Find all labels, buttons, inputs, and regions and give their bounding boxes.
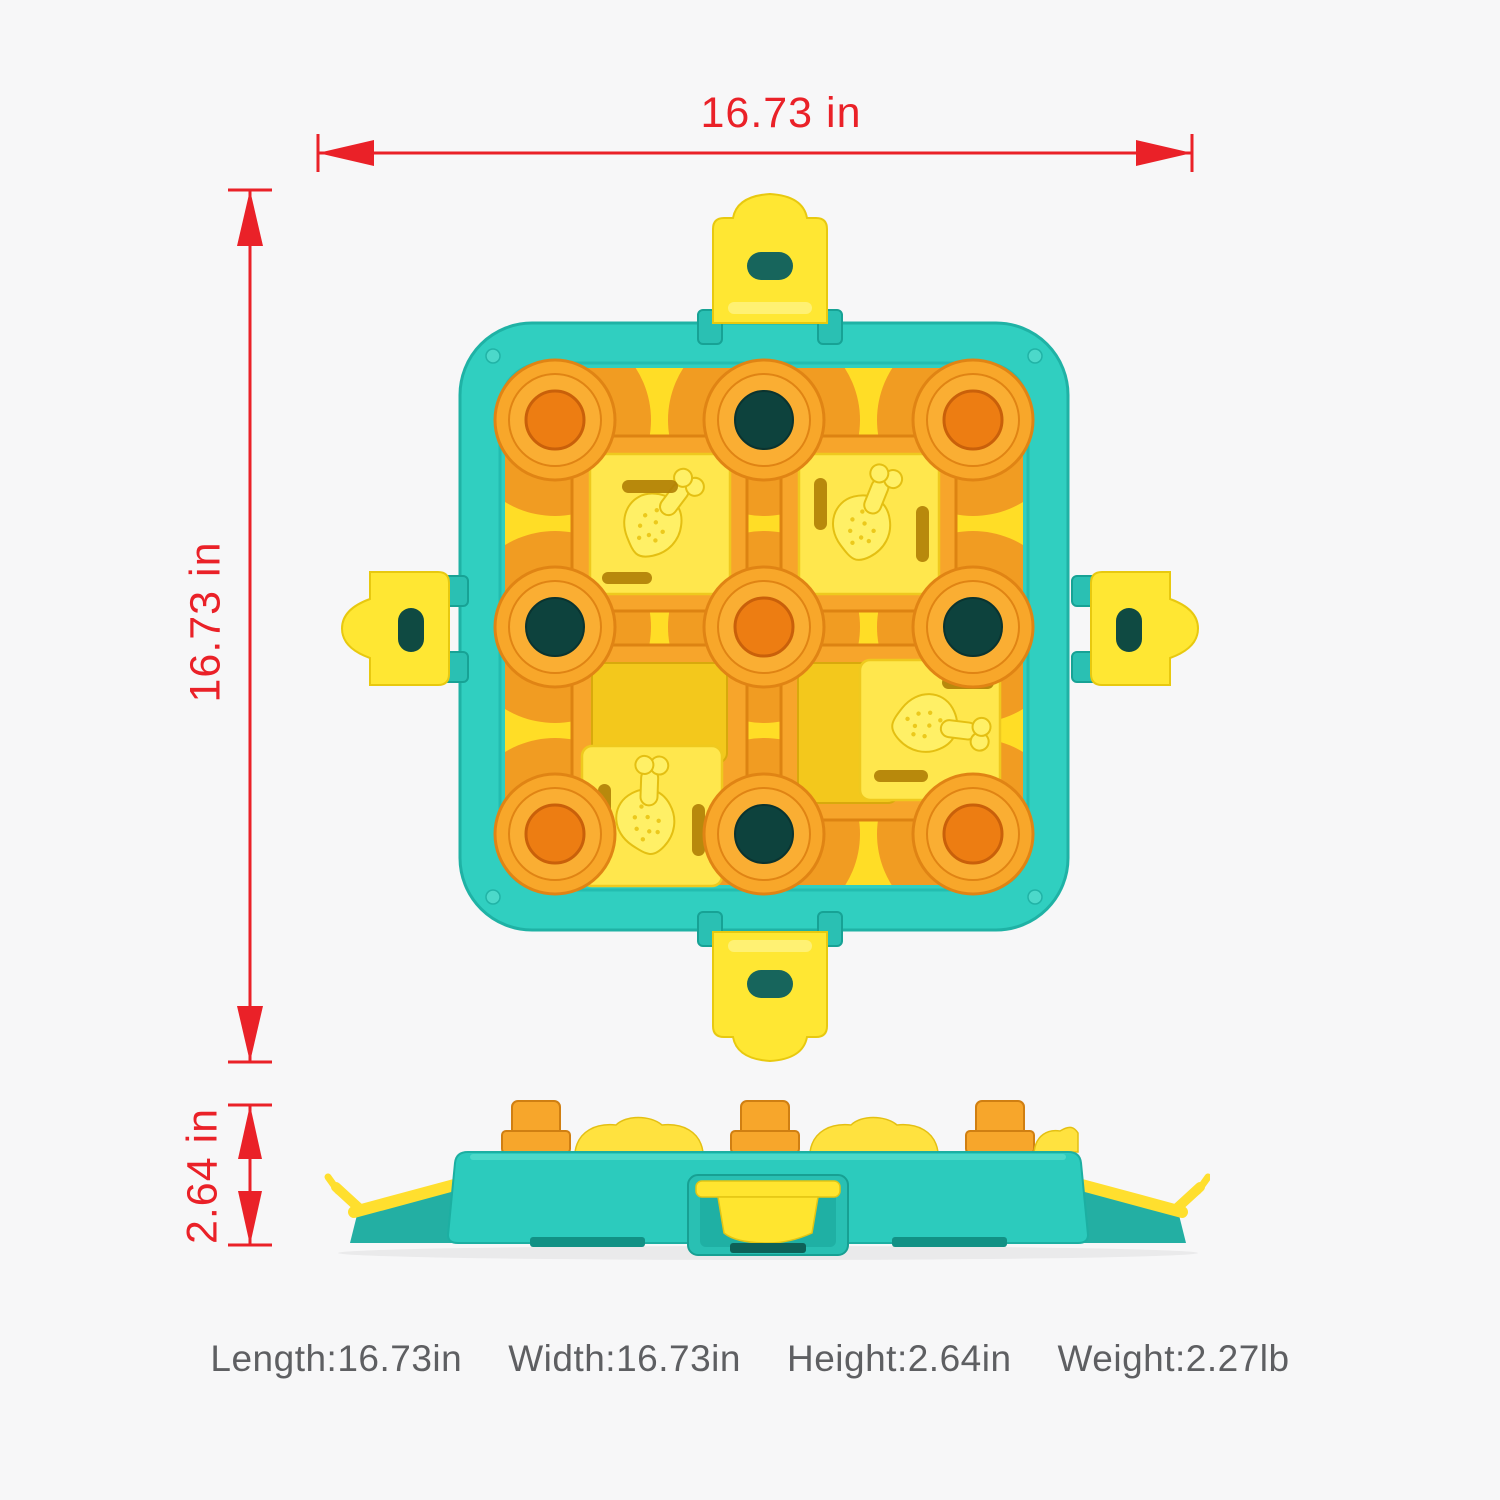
- product-dimension-diagram: 16.73 in 16.73 in 2.64 in: [0, 0, 1500, 1500]
- front-latch[interactable]: [688, 1175, 848, 1255]
- well-ring-set: [495, 360, 1033, 894]
- well-hole-open: [735, 805, 793, 863]
- arrowhead-bottom: [238, 1191, 262, 1245]
- body-highlight: [470, 1154, 1066, 1160]
- foot: [530, 1237, 645, 1247]
- foot: [892, 1237, 1007, 1247]
- thickness-dimension-label: 2.64 in: [182, 1108, 225, 1244]
- well-hole-closed: [944, 805, 1002, 863]
- latch-slot: [730, 1243, 806, 1253]
- spec-weight: Weight:2.27lb: [1058, 1338, 1290, 1380]
- slider-top-right[interactable]: [799, 454, 939, 594]
- latch-slot: [1116, 608, 1142, 652]
- latch-clip-top[interactable]: [698, 194, 842, 344]
- well-hole-open: [944, 598, 1002, 656]
- width-dimension-label: 16.73 in: [700, 92, 861, 135]
- height-dimension-arrow: [226, 184, 274, 1068]
- well-hole-closed: [735, 598, 793, 656]
- width-dimension-arrow: [312, 131, 1198, 175]
- height-dimension-label: 16.73 in: [185, 541, 228, 702]
- arrowhead-top: [237, 190, 263, 246]
- latch-slot: [398, 608, 424, 652]
- well-hole-closed: [944, 391, 1002, 449]
- arrowhead-right: [1136, 140, 1192, 166]
- latch-clip-left[interactable]: [342, 572, 468, 685]
- top-knobs: [502, 1101, 1078, 1153]
- latch-slot: [747, 252, 793, 280]
- well-hole-closed: [526, 805, 584, 863]
- spec-text-row: Length:16.73in Width:16.73in Height:2.64…: [0, 1338, 1500, 1380]
- treat-wells: [495, 360, 1033, 894]
- spec-height: Height:2.64in: [787, 1338, 1012, 1380]
- latch-slot: [747, 970, 793, 998]
- well-hole-open: [735, 391, 793, 449]
- puzzle-top-view: [330, 190, 1210, 1070]
- arrowhead-left: [318, 140, 374, 166]
- spec-width: Width:16.73in: [508, 1338, 741, 1380]
- latch-clip-bottom[interactable]: [698, 912, 842, 1061]
- thickness-dimension-arrow: [226, 1099, 274, 1251]
- well-hole-closed: [526, 391, 584, 449]
- well-hole-open: [526, 598, 584, 656]
- arrowhead-bottom: [237, 1006, 263, 1062]
- spec-length: Length:16.73in: [210, 1338, 462, 1380]
- puzzle-side-view: [320, 1085, 1210, 1265]
- slider-top-left[interactable]: [590, 454, 730, 594]
- arrowhead-top: [238, 1105, 262, 1159]
- latch-clip-right[interactable]: [1072, 572, 1198, 685]
